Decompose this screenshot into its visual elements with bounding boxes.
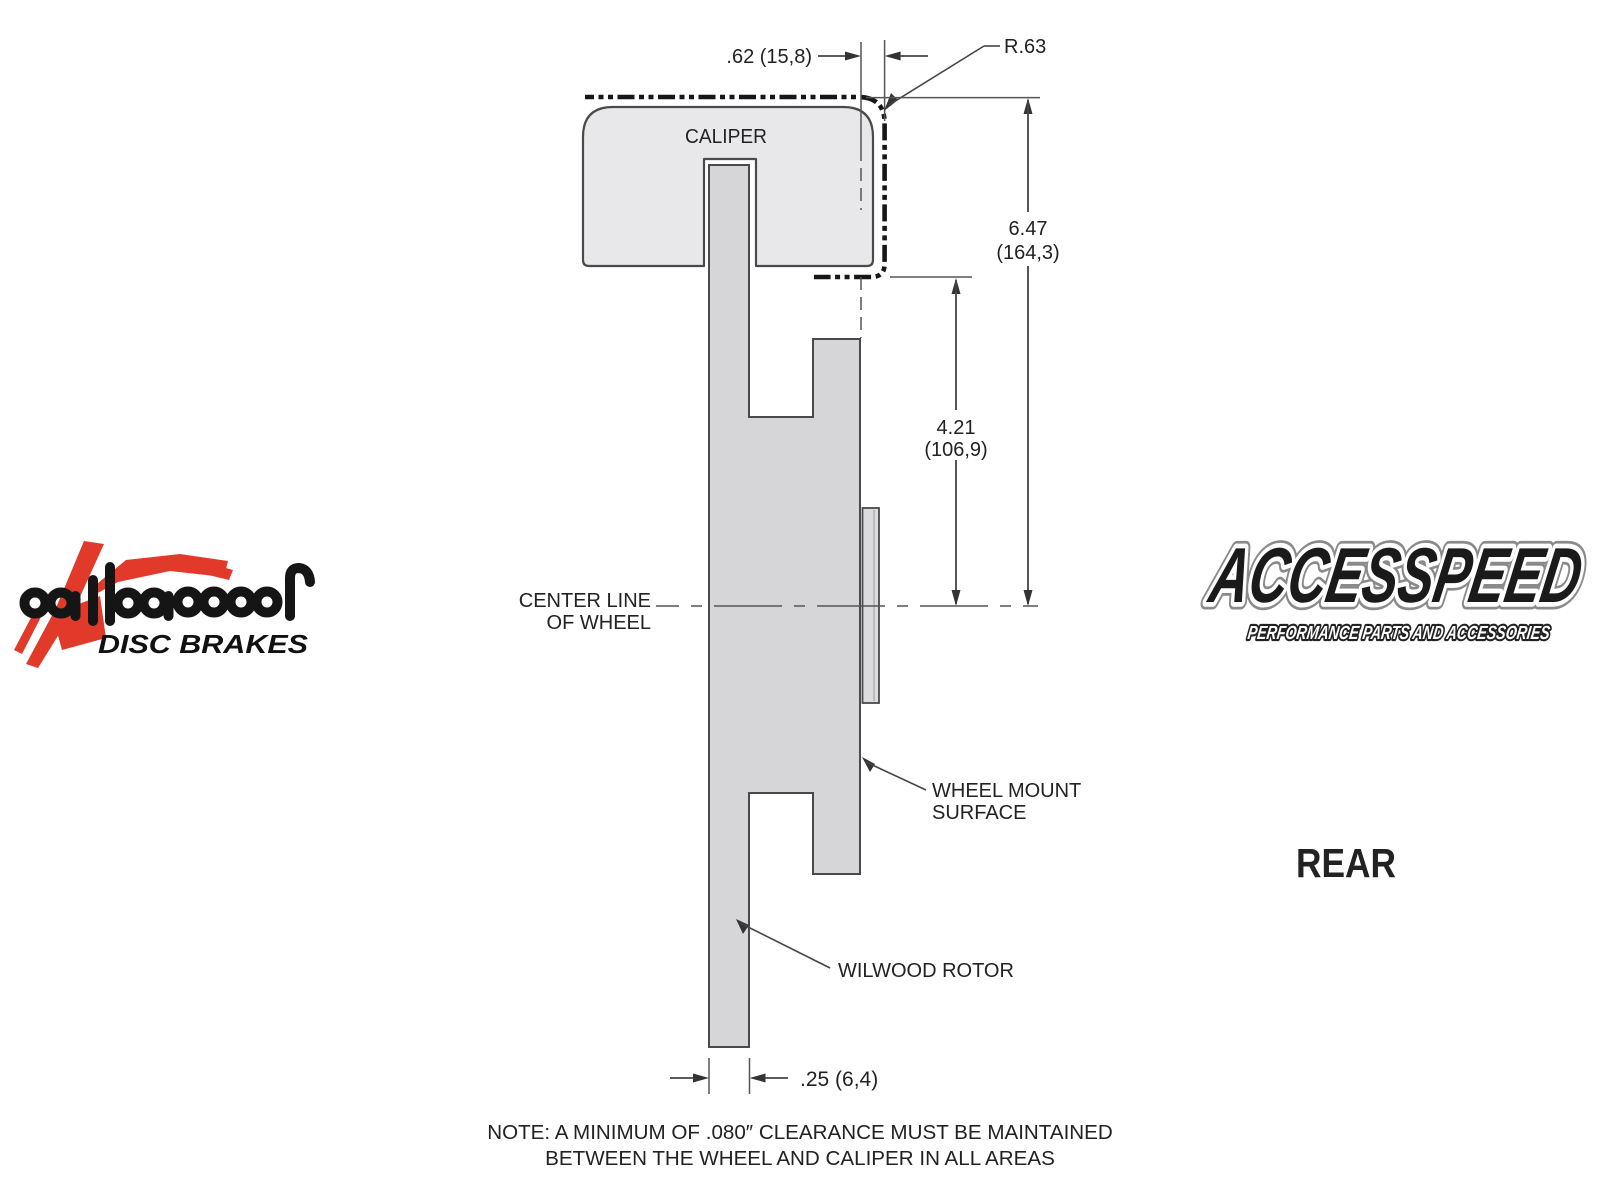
svg-text:CALIPER: CALIPER <box>685 126 767 148</box>
svg-text:CENTER LINE: CENTER LINE <box>519 590 651 612</box>
svg-text:.62 (15,8): .62 (15,8) <box>726 46 812 68</box>
svg-text:.25 (6,4): .25 (6,4) <box>800 1068 878 1091</box>
svg-text:(164,3): (164,3) <box>996 242 1059 264</box>
svg-text:REAR: REAR <box>1296 840 1396 886</box>
svg-text:WILWOOD ROTOR: WILWOOD ROTOR <box>838 960 1014 982</box>
svg-text:BETWEEN THE WHEEL AND CALIPER: BETWEEN THE WHEEL AND CALIPER IN ALL ARE… <box>545 1147 1055 1170</box>
svg-text:SURFACE: SURFACE <box>932 802 1026 824</box>
svg-text:R.63: R.63 <box>1004 36 1046 58</box>
svg-text:PERFORMANCE PARTS AND ACCESSOR: PERFORMANCE PARTS AND ACCESSORIES <box>1246 623 1551 644</box>
svg-text:WHEEL MOUNT: WHEEL MOUNT <box>932 780 1081 802</box>
svg-text:6.47: 6.47 <box>1009 218 1048 240</box>
svg-text:4.21: 4.21 <box>937 417 976 439</box>
svg-text:OF WHEEL: OF WHEEL <box>547 612 651 634</box>
svg-text:ACCESSPEED: ACCESSPEED <box>1202 532 1589 620</box>
svg-text:DISC BRAKES: DISC BRAKES <box>98 629 309 659</box>
svg-text:(106,9): (106,9) <box>924 439 987 461</box>
svg-text:NOTE: A MINIMUM OF .080″ CLEAR: NOTE: A MINIMUM OF .080″ CLEARANCE MUST … <box>487 1121 1113 1144</box>
